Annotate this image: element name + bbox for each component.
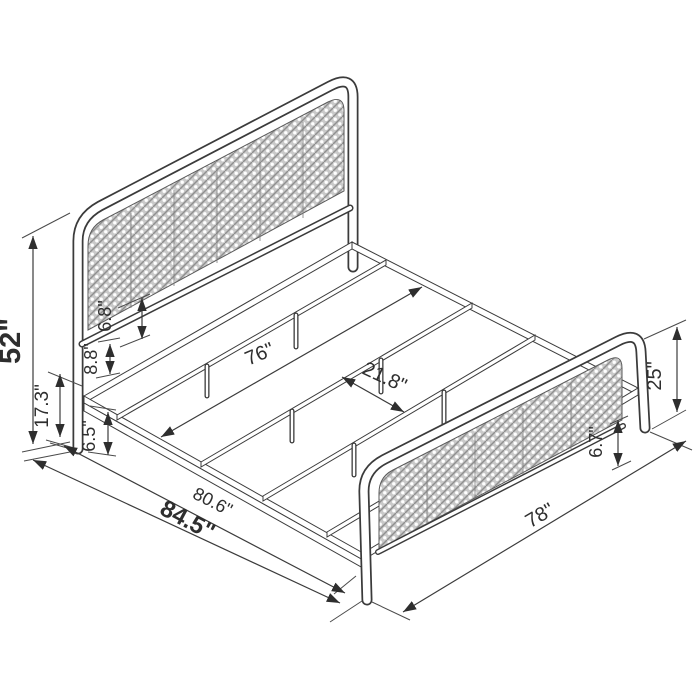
dim-label-underbed-clearance: 17.3" [32, 384, 53, 428]
dim-label-footboard-height: 25" [644, 361, 666, 390]
slat-2 [201, 303, 472, 467]
bed-frame-dimension-diagram: 52" 17.3" 6.8" 8.8" 6.5" 76" 21.8" 80.6"… [0, 0, 700, 700]
dim-label-footboard-clearance: 6.7" [586, 426, 606, 457]
left-side-rail-face [84, 403, 363, 568]
dim-label-rail-height: 6.5" [79, 420, 99, 451]
diagram-canvas: 52" 17.3" 6.8" 8.8" 6.5" 76" 21.8" 80.6"… [0, 0, 700, 700]
dim-label-headboard-height: 52" [0, 318, 27, 364]
dim-label-overall-width: 78" [522, 499, 558, 533]
dim-label-panel-to-crossbar: 6.8" [95, 300, 115, 331]
dim-label-crossbar-to-rail: 8.8" [81, 343, 101, 374]
headboard-cane-panel [88, 99, 344, 330]
